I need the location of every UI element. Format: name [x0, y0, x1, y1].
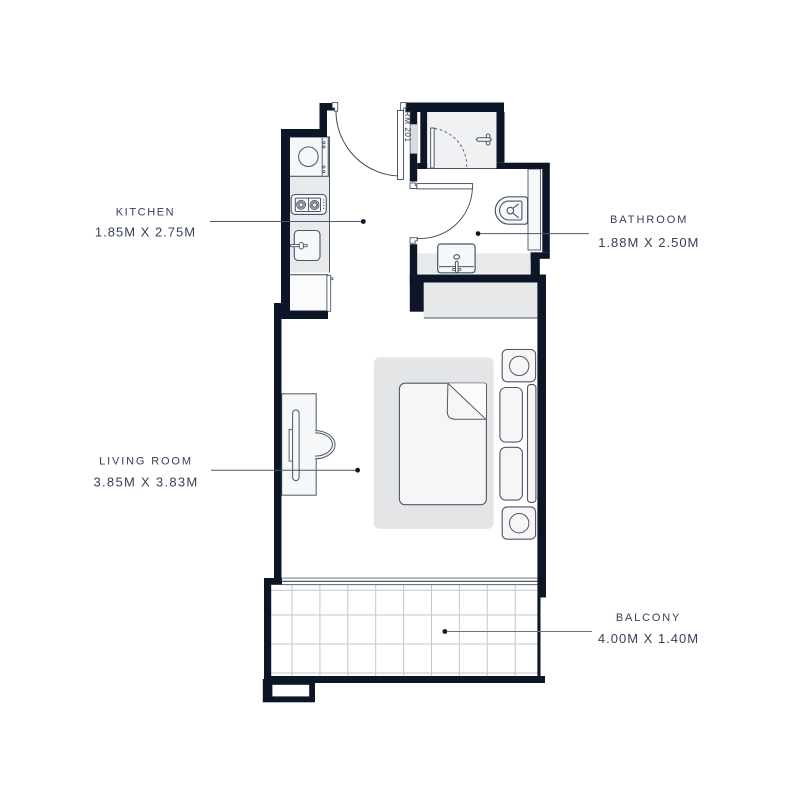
svg-text:BALCONY: BALCONY — [616, 612, 681, 624]
svg-text:LIVING ROOM: LIVING ROOM — [99, 456, 193, 468]
svg-text:1.88M X 2.50M: 1.88M X 2.50M — [598, 235, 699, 250]
svg-text:RM 201: RM 201 — [403, 111, 412, 143]
svg-text:4.00M X 1.40M: 4.00M X 1.40M — [598, 631, 699, 646]
svg-text:1.85M X 2.75M: 1.85M X 2.75M — [95, 225, 196, 240]
svg-text:3.85M X 3.83M: 3.85M X 3.83M — [93, 475, 198, 490]
svg-text:KITCHEN: KITCHEN — [116, 207, 175, 219]
svg-text:BATHROOM: BATHROOM — [610, 214, 688, 226]
